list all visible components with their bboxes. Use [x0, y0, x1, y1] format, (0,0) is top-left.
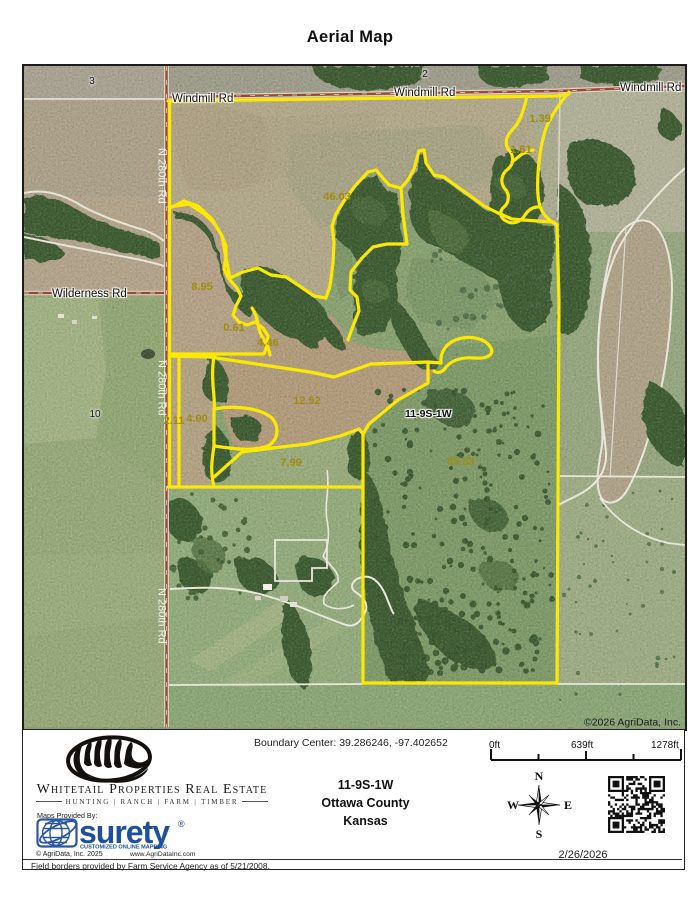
svg-text:N 280th Rd: N 280th Rd	[156, 360, 168, 416]
svg-text:4.46: 4.46	[257, 337, 278, 349]
svg-text:E: E	[564, 798, 572, 812]
svg-text:®: ®	[178, 819, 185, 829]
svg-text:1.39: 1.39	[529, 113, 550, 125]
svg-text:11-9S-1W: 11-9S-1W	[405, 408, 452, 420]
svg-text:7.99: 7.99	[280, 457, 301, 469]
svg-text:8.95: 8.95	[191, 281, 212, 293]
svg-text:N: N	[535, 770, 544, 783]
svg-text:©2026 AgriData, Inc.: ©2026 AgriData, Inc.	[584, 717, 681, 729]
svg-text:12.52: 12.52	[293, 395, 321, 407]
svg-text:4.00: 4.00	[186, 413, 207, 425]
svg-text:Windmill Rd: Windmill Rd	[620, 82, 681, 94]
svg-text:Wilderness Rd: Wilderness Rd	[52, 288, 127, 300]
svg-text:46.03: 46.03	[323, 191, 351, 203]
svg-text:10: 10	[89, 409, 101, 420]
svg-text:W: W	[507, 798, 519, 812]
svg-text:3: 3	[89, 76, 95, 87]
svg-text:N 280th Rd: N 280th Rd	[156, 148, 168, 204]
svg-text:Windmill Rd: Windmill Rd	[394, 87, 455, 99]
svg-text:N 280th Rd: N 280th Rd	[156, 588, 168, 644]
svg-text:2.11: 2.11	[164, 415, 185, 427]
svg-text:1.61: 1.61	[510, 144, 531, 156]
svg-text:Windmill Rd: Windmill Rd	[172, 93, 233, 105]
svg-text:85.53: 85.53	[447, 456, 475, 468]
svg-text:CUSTOMIZED ONLINE MAPPING: CUSTOMIZED ONLINE MAPPING	[80, 845, 167, 850]
svg-text:2: 2	[422, 69, 428, 80]
svg-text:S: S	[536, 827, 543, 841]
svg-text:0.61: 0.61	[223, 322, 244, 334]
